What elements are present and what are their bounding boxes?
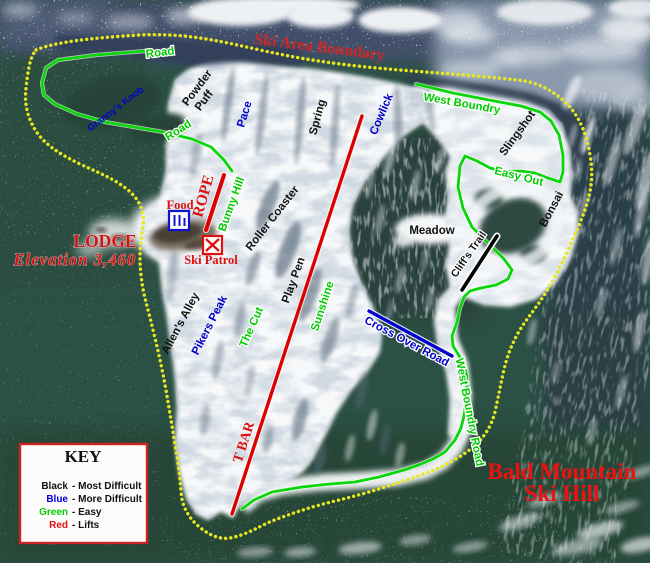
svg-text:Green: Green [39, 507, 68, 518]
svg-text:Red: Red [49, 520, 68, 531]
svg-text:KEY: KEY [65, 447, 102, 466]
svg-text:Meadow: Meadow [409, 225, 454, 237]
svg-text:Blue: Blue [46, 494, 68, 505]
svg-text:- Easy: - Easy [72, 507, 102, 518]
svg-text:Food: Food [166, 198, 193, 212]
svg-text:Black: Black [41, 481, 68, 492]
svg-text:- More Difficult: - More Difficult [72, 494, 143, 505]
svg-text:- Lifts: - Lifts [72, 520, 100, 531]
svg-text:LODGE: LODGE [73, 231, 136, 251]
svg-text:Elevation 3,460: Elevation 3,460 [13, 250, 137, 269]
svg-text:- Most Difficult: - Most Difficult [72, 481, 142, 492]
svg-text:Ski Hill: Ski Hill [525, 481, 600, 506]
svg-text:Ski Patrol: Ski Patrol [184, 253, 238, 267]
